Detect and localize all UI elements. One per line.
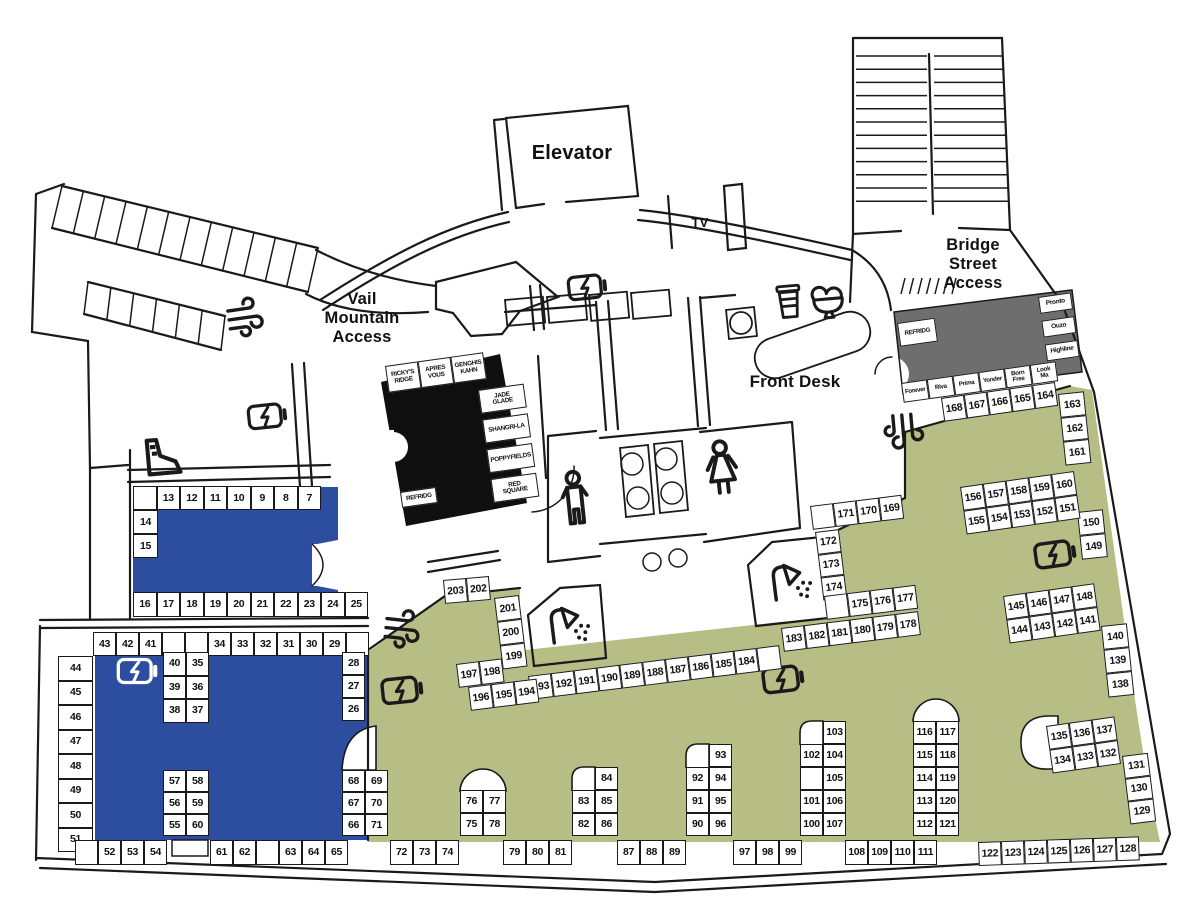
stair-tread (910, 278, 914, 294)
stair-tread (84, 282, 88, 314)
stair-tread (159, 212, 169, 255)
stair-rails (52, 186, 318, 350)
restroom-walls (505, 295, 800, 562)
right-stairwell (850, 38, 1010, 302)
zone-blue-upper (133, 487, 338, 617)
stair-tread (116, 202, 126, 245)
toilet (643, 553, 661, 571)
sink (621, 453, 643, 475)
arch-pillar (1021, 716, 1058, 769)
stair-tread (175, 305, 179, 338)
mens-restroom-icon (560, 471, 589, 525)
stair-tread (944, 278, 948, 294)
stair-tread (198, 310, 202, 344)
air-dryer-icon (226, 297, 263, 338)
vail-vestibule (436, 262, 558, 336)
front-desk-counter (755, 312, 870, 378)
charging-station-icon (248, 403, 286, 429)
stair-tread (265, 238, 275, 282)
lobby-bench (631, 290, 671, 319)
threshold-bump (172, 840, 208, 856)
charging-station-icon (568, 274, 606, 300)
arch-pillar (686, 744, 709, 768)
shower-icon (772, 562, 814, 602)
restroom-fixtures (620, 441, 688, 571)
stair-tread (73, 191, 83, 233)
stair-tread (153, 299, 157, 332)
bridge-entry-steps (901, 278, 956, 294)
arch-pillar (572, 767, 595, 791)
stair-tread (130, 293, 134, 326)
elevator-room (494, 106, 638, 210)
stair-tread (137, 207, 147, 250)
sink (661, 482, 683, 504)
planter (730, 312, 752, 334)
stair-tread (287, 243, 297, 287)
toilet (669, 549, 687, 567)
stair-tread (180, 217, 190, 260)
tv-wall (668, 184, 746, 250)
stair-tread (927, 278, 931, 294)
stair-tread (935, 278, 939, 294)
womens-restroom-icon (705, 440, 739, 494)
stair-tread (221, 316, 225, 350)
stair-tread (918, 278, 922, 294)
stair-treads-top-left (52, 186, 318, 350)
stair-tread (952, 278, 956, 294)
stair-tread (95, 196, 105, 238)
stair-tread (107, 288, 111, 320)
stair-tread (244, 233, 254, 277)
sink (655, 448, 677, 470)
floor-plan-drawing (0, 0, 1202, 923)
arch-pillar (800, 721, 823, 745)
stair-tread (52, 186, 62, 228)
coffee-icon (777, 285, 802, 318)
shower-icon (550, 605, 592, 645)
stair-tread (223, 227, 233, 270)
stair-tread (308, 248, 318, 292)
stair-tread (201, 222, 211, 265)
zone-ski-valet-gray (894, 290, 1082, 394)
stair-tread (901, 278, 905, 294)
zone-olive-mid (470, 614, 930, 705)
sink (627, 487, 649, 509)
locker-floor-plan: 1312111098714151617181920212223242543424… (0, 0, 1202, 923)
zone-layer (95, 290, 1160, 842)
